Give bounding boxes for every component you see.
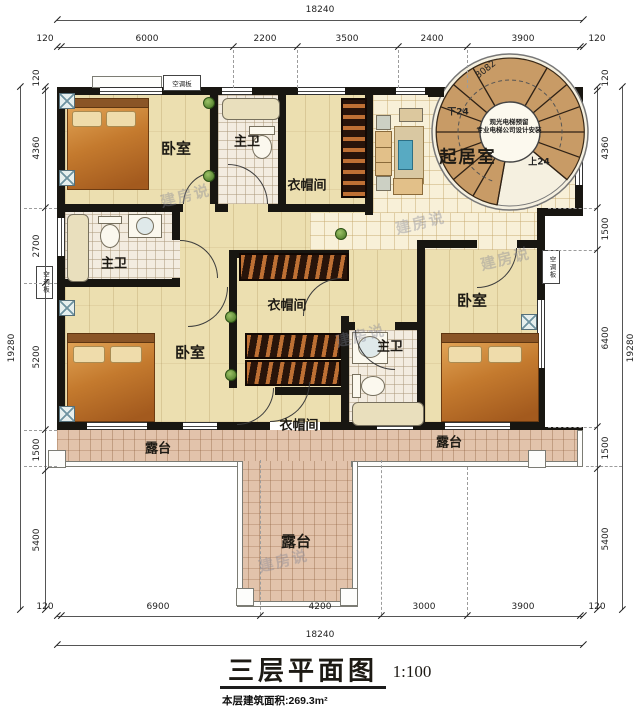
toilet-bowl: [100, 224, 120, 248]
sofa-seat: [393, 178, 423, 195]
room-label-terrace-right: 露台: [436, 432, 462, 451]
stool: [376, 115, 391, 130]
toilet-tank: [98, 216, 122, 224]
bathtub: [67, 214, 89, 282]
column: [236, 588, 254, 606]
room-label-closet-top: 衣帽间: [287, 175, 326, 194]
floor-plan-drawing: 空调板 空调板 空调板 观光电梯预留 专业电梯公司设计安装 下24 上24 30…: [0, 0, 640, 709]
drawing-title: 三层平面图: [228, 651, 378, 688]
room-label-bedroom-mid-left: 卧室: [175, 342, 205, 363]
toilet-bowl: [361, 376, 385, 396]
column: [340, 588, 358, 606]
wardrobe: [341, 98, 367, 198]
bathtub: [352, 402, 424, 426]
room-label-terrace-left: 露台: [145, 438, 171, 457]
stair-down-label: 下24: [447, 105, 469, 118]
column: [528, 450, 546, 468]
stool: [376, 176, 391, 191]
room-label-bedroom-right: 卧室: [457, 290, 487, 311]
wardrobe: [239, 253, 349, 281]
sink-basin: [136, 217, 154, 235]
coffee-table: [398, 140, 413, 170]
side-table: [399, 108, 423, 122]
room-label-bath-top: 主卫: [234, 131, 260, 150]
stair-up-label: 上24: [528, 155, 550, 168]
stair-note: 观光电梯预留 专业电梯公司设计安装: [469, 119, 549, 135]
room-label-closet-center: 衣帽间: [267, 295, 306, 314]
title-underline: [220, 686, 386, 689]
bathtub: [222, 98, 280, 120]
room-label-bedroom-top-left: 卧室: [161, 138, 191, 159]
room-label-bath-mid: 主卫: [101, 253, 127, 272]
ac-panel-top: 空调板: [163, 75, 201, 91]
area-note: 本层建筑面积:269.3m²: [222, 693, 328, 708]
room-label-closet-bottom: 衣帽间: [279, 415, 318, 434]
sofa: [375, 131, 392, 176]
drawing-scale: 1:100: [393, 662, 432, 682]
room-label-living: 起居室: [440, 143, 497, 168]
wardrobe: [245, 333, 341, 359]
toilet-tank: [352, 374, 361, 398]
ac-panel-right: 空调板: [542, 250, 560, 284]
